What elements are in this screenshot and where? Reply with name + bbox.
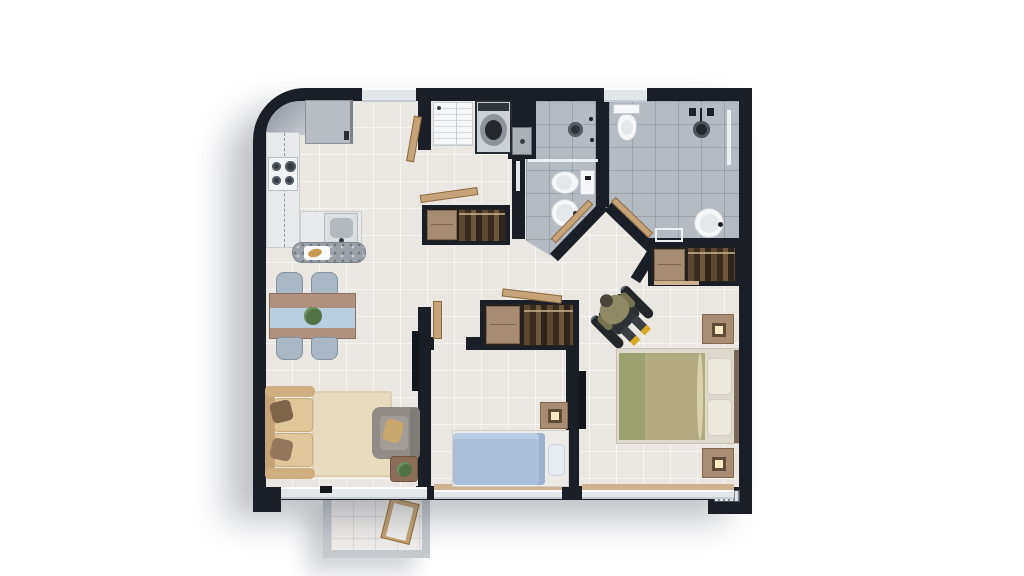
bed-blanket-olive — [619, 353, 705, 440]
toilet-seat-inner — [621, 120, 633, 135]
wall-foot-bottom-left — [253, 498, 281, 512]
refrigerator — [305, 100, 353, 144]
wall-living-bedroom2 — [418, 307, 431, 487]
main-nightstand-top — [702, 314, 734, 344]
dining-chair — [311, 272, 338, 295]
hall-closet — [422, 205, 510, 245]
throw-pillow — [269, 437, 294, 462]
lounge-chair-cushion — [386, 503, 414, 541]
shower-drain — [568, 122, 583, 137]
glass-partition-laundry — [516, 161, 520, 191]
shower-bench — [655, 228, 683, 242]
burner — [285, 176, 294, 185]
wall-block-window-divider — [562, 486, 582, 500]
blanket-fold-dark — [619, 353, 645, 440]
door-bedroom2 — [433, 301, 442, 339]
nightstand-lamp — [712, 323, 726, 337]
shower-control — [590, 138, 594, 142]
washing-machine — [475, 100, 512, 154]
toilet-bath1-bowl — [551, 171, 579, 194]
faucet-dot — [437, 106, 441, 110]
shower-glass-bath1 — [528, 159, 598, 162]
toilet-bath1-tank — [580, 170, 595, 195]
plant-centerpiece — [304, 307, 322, 325]
tv-living-room — [412, 331, 419, 391]
burner — [272, 176, 281, 185]
cutting-board — [304, 246, 330, 260]
blanket-fold-light — [697, 353, 703, 440]
closet-dresser — [486, 306, 520, 344]
armchair — [372, 407, 420, 459]
nightstand-lamp — [712, 457, 726, 471]
window-main-bedroom — [582, 490, 734, 499]
washer-drum-inner — [485, 120, 502, 140]
washer-control-panel — [478, 103, 509, 111]
burner — [285, 161, 296, 172]
slider-handle — [320, 486, 332, 493]
dining-chair — [311, 337, 338, 360]
sofa — [265, 386, 315, 479]
armchair-back — [410, 407, 420, 459]
fridge-handle — [344, 131, 349, 140]
window-top-bathroom2 — [604, 88, 647, 102]
closet-rod — [459, 213, 505, 215]
wall-bedroom2-top-a — [418, 337, 434, 350]
bed-headboard — [734, 350, 739, 443]
main-bed — [616, 348, 739, 444]
toilet-bath2-bowl — [617, 114, 637, 141]
main-nightstand-bottom — [702, 448, 734, 478]
bed-pillow — [548, 444, 565, 476]
bread-loaf — [307, 247, 323, 258]
toilet-seat-inner — [556, 175, 572, 190]
dining-chair — [276, 272, 303, 295]
sink-basin-inner — [700, 214, 719, 233]
shower-arm — [707, 108, 714, 116]
faucet-dot — [718, 222, 723, 227]
sink-basin — [330, 218, 353, 238]
side-table — [390, 456, 418, 482]
toilet-bath2-tank — [613, 104, 640, 114]
bed-blanket-blue — [453, 433, 545, 485]
bedroom2-closet — [480, 300, 578, 350]
dining-table — [269, 293, 356, 339]
nightstand-lamp — [548, 409, 562, 423]
bed-pillow — [707, 399, 732, 436]
sink-bath2 — [694, 208, 724, 238]
balcony-wall-left — [323, 494, 331, 558]
flush-button — [585, 176, 591, 180]
balcony-wall-bottom — [323, 550, 430, 558]
dining-chair — [276, 337, 303, 360]
closet-dresser — [427, 210, 457, 240]
burner — [272, 162, 281, 171]
main-bedroom-closet — [648, 243, 739, 286]
closet-rod — [524, 310, 573, 312]
granite-island — [292, 242, 366, 263]
floor-plan-canvas — [0, 0, 1024, 576]
plant-pot — [397, 462, 412, 477]
closet-dresser — [654, 249, 685, 281]
bedroom2-nightstand — [540, 402, 568, 429]
washer-drum — [480, 114, 507, 146]
utility-sink-divider — [456, 103, 457, 145]
utility-sink — [433, 102, 473, 146]
bedroom2-bed — [452, 430, 569, 487]
window-bedroom2 — [434, 490, 562, 499]
closet-rod — [688, 252, 735, 254]
tv-main-bedroom — [579, 371, 586, 429]
sofa-armrest — [265, 386, 315, 397]
closet-wood-front — [654, 281, 699, 285]
kitchen-sink — [324, 213, 358, 244]
balcony — [323, 494, 430, 558]
shower-arm — [689, 108, 696, 116]
shower-head-bath2 — [693, 121, 710, 138]
balcony-wall-right — [422, 494, 430, 558]
faucet-dot — [520, 139, 525, 144]
wall-bath-divider — [596, 101, 609, 207]
bed-pillow — [707, 358, 732, 395]
window-top-kitchen — [362, 88, 416, 102]
shower-glass-bath2 — [727, 110, 731, 165]
laundry-vanity-sink — [512, 127, 532, 155]
stove — [268, 157, 298, 191]
shower-control — [589, 117, 593, 121]
sofa-armrest — [265, 468, 315, 479]
balcony-sliding-door — [281, 487, 427, 499]
